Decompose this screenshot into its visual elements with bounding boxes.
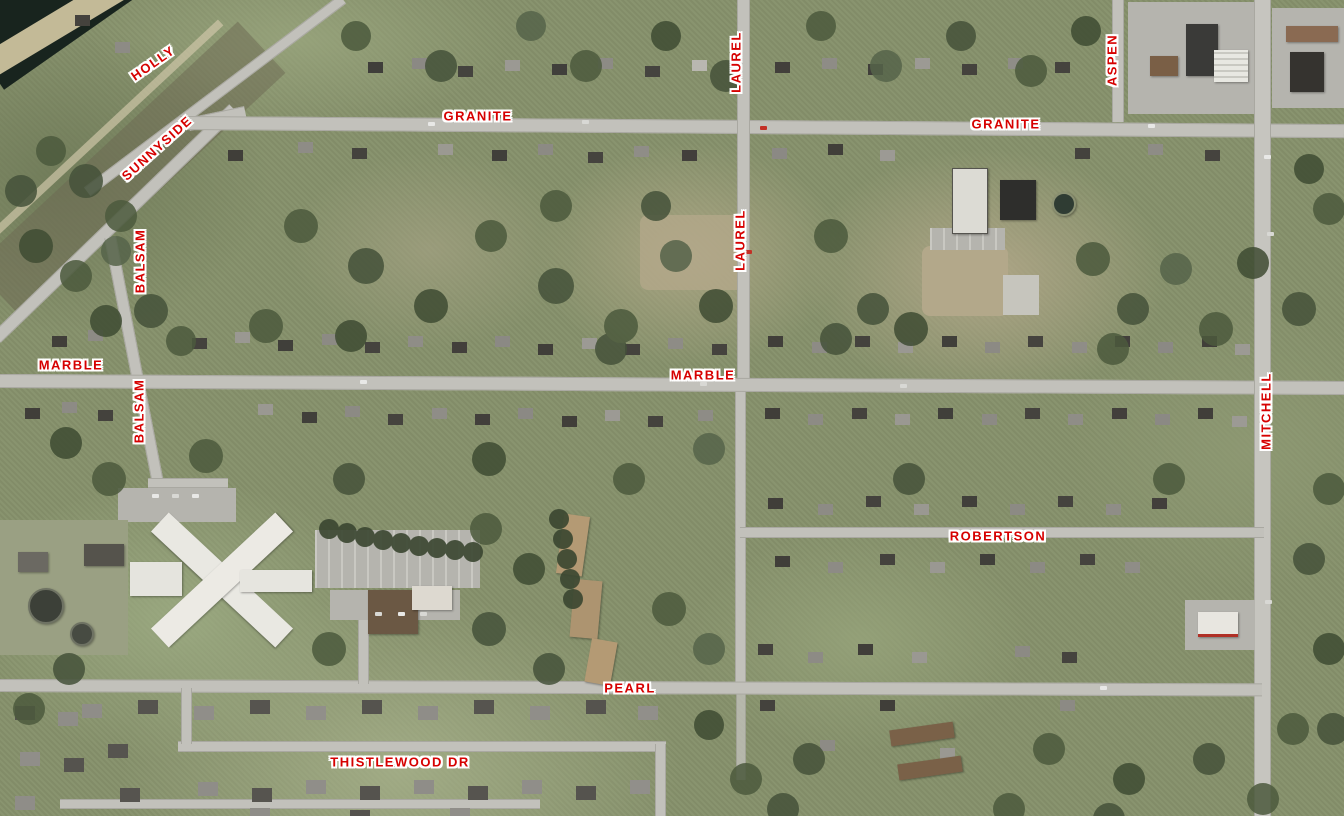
aerial-map[interactable]: HOLLY SUNNYSIDE GRANITE LAUREL GRANITE A… (0, 0, 1344, 816)
parking-lot-school (315, 530, 480, 588)
gas-station-building (1198, 612, 1238, 637)
street-label-granite-east: GRANITE (972, 117, 1041, 132)
church-building-brown (368, 590, 418, 634)
street-label-balsam-south: BALSAM (132, 379, 147, 444)
east-building-brown (1286, 26, 1338, 42)
community-building-dark (1000, 180, 1036, 220)
commercial-building-white (1214, 50, 1248, 82)
street-label-robertson: ROBERTSON (950, 529, 1047, 544)
industrial-building-1 (84, 544, 124, 566)
apartment-building-se-2 (897, 756, 963, 781)
road-thistlewood-west-leg (181, 688, 192, 744)
street-label-balsam-north: BALSAM (133, 229, 148, 294)
pond-circle (1052, 192, 1076, 216)
apartment-building-3 (584, 638, 617, 686)
commercial-building-brown (1150, 56, 1178, 76)
road-granite (180, 116, 1344, 138)
street-label-marble-central: MARBLE (671, 368, 736, 383)
road-thistlewood-east-leg (655, 744, 666, 816)
street-label-thistlewood-dr: THISTLEWOOD DR (330, 755, 469, 770)
road-laurel-stub-south (736, 690, 746, 780)
storage-tank-small (70, 622, 94, 646)
street-label-pearl: PEARL (604, 681, 656, 696)
vehicles-scatter (0, 0, 7, 4)
street-label-laurel-north: LAUREL (729, 31, 744, 93)
storage-tank-large (28, 588, 64, 624)
street-label-mitchell: MITCHELL (1259, 372, 1274, 450)
industrial-building-2 (18, 552, 48, 572)
street-label-marble-west: MARBLE (39, 358, 104, 373)
school-building-west-block (130, 562, 182, 596)
school-building-east-arm (240, 570, 312, 592)
apartment-building-2 (570, 579, 603, 639)
church-building-white (412, 586, 452, 610)
east-building-dark (1290, 52, 1324, 92)
parking-lot-industrial (118, 488, 236, 522)
apartment-building-1 (556, 513, 590, 576)
street-label-granite-west: GRANITE (444, 109, 513, 124)
concrete-pad (1003, 275, 1039, 315)
industrial-yard (0, 520, 128, 655)
apartment-building-se-1 (889, 722, 955, 747)
road-thistlewood-lower (60, 799, 540, 809)
road-thistlewood (178, 741, 666, 752)
street-label-laurel-mid: LAUREL (733, 209, 748, 271)
street-label-aspen: ASPEN (1105, 34, 1120, 86)
dirt-field-right (922, 246, 1008, 316)
road-balsam-school-drive (148, 478, 228, 488)
community-building-white (952, 168, 988, 234)
